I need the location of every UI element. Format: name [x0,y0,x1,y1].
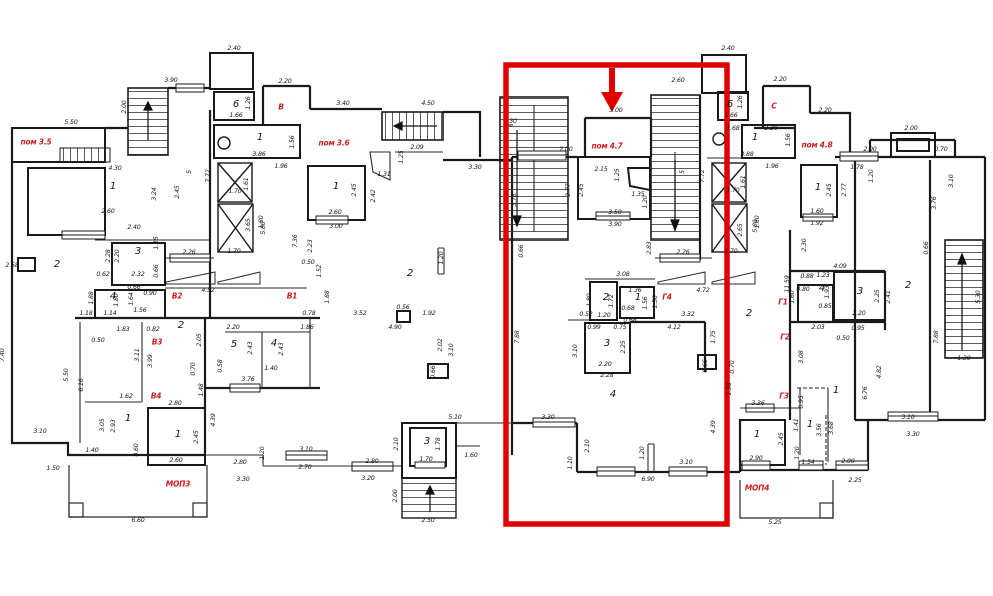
dimension-label: 2.28 [600,373,613,379]
section-label: пом 3.5 [21,138,52,146]
room-number-label: 1 [125,414,131,424]
dimension-label: 2.10 [585,439,591,452]
dimension-label: 0.70 [191,362,197,375]
dimension-label: 30 [509,119,517,125]
dimension-label: 0.50 [836,336,849,342]
dimension-label: 2.50 [421,518,434,524]
dimension-label: 3.76 [241,377,254,383]
dimension-label: 0.99 [587,325,600,331]
dimension-label: 2.45 [175,185,181,198]
dimension-label: 0.52 [579,312,592,318]
dimension-label: 1.15 [154,236,160,249]
floor-plan-page: 2.403.905.502.004.301.261.663.861.562.20… [0,0,993,596]
dimension-label: 0.85 [818,304,831,310]
dimension-label: 2.20 [773,77,786,83]
room-number-label: 1 [175,430,181,440]
dimension-label: 1.96 [765,164,778,170]
dimension-label: 1.26 [738,95,744,108]
dimension-label: 1.64 [129,292,135,305]
dimension-label: 2.77 [566,183,572,196]
dimension-label: 2.80 [233,460,246,466]
dimension-label: 5.10 [448,415,461,421]
dimension-label: 1.20 [795,446,801,459]
dimension-label: 0.50 [301,260,314,266]
dimension-label: 1.20 [869,169,875,182]
dimension-label: 1.56 [133,308,146,314]
room-number-label: 1 [754,430,760,440]
dimension-label: 1.70 [228,189,241,195]
room-number-label: 1 [833,386,839,396]
room-number-label: 2 [603,293,609,303]
dimension-label: 2.28 [106,249,112,262]
room-number-label: 2 [746,309,752,319]
dimension-label: 2.26 [676,250,689,256]
dimension-label: 3.10 [573,344,579,357]
dimension-label: 7.88 [515,330,521,343]
dimension-label: 1.56 [786,133,792,146]
dimension-label: 0.66 [154,264,160,277]
dimension-label: 1.96 [274,164,287,170]
dimension-label: 2.02 [438,338,444,351]
room-number-label: 6 [727,100,733,110]
dimension-label: 2.43 [279,342,285,355]
dimension-label: 1.88 [89,291,95,304]
room-number-label: 3 [424,437,430,447]
section-label: пом 4.8 [802,141,833,149]
dimension-label: 2.41 [886,290,892,303]
section-label: Г3 [779,392,789,400]
dimension-label: 5 [680,170,686,174]
dimension-label: 0.70 [730,360,736,373]
room-number-label: 5 [231,340,237,350]
dimension-label: 2.60 [671,78,684,84]
dimension-label: 2.00 [841,459,854,465]
dimension-label: 1.25 [615,168,621,181]
section-label: пом 3.6 [319,139,350,147]
dimension-label: 2.23 [308,239,314,252]
dimension-label: 3.50 [608,210,621,216]
section-label: МОП4 [745,484,770,492]
dimension-label: 0.60 [134,443,140,456]
dimension-label: 2.45 [579,183,585,196]
section-label: пом 4.7 [592,142,623,150]
dimension-label: 0.66 [703,359,709,372]
dimension-label: 2.60 [169,458,182,464]
dimension-label: 1.62 [119,394,132,400]
dimension-label: 1.80 [755,215,761,228]
dimension-label: 3.56 [817,423,823,436]
dimension-label: 3.30 [906,432,919,438]
dimension-label: 3.30 [468,165,481,171]
dimension-label: 3.90 [164,78,177,84]
dimension-label: 1.31 [377,172,390,178]
dimension-label: 2.05 [197,333,203,346]
dimension-label: 4.39 [711,420,717,433]
dimension-label: 1.72 [609,294,615,307]
dimension-label: 1.88 [325,290,331,303]
dimension-label: 2.20 [278,79,291,85]
dimension-label: 5.50 [64,368,70,381]
section-label: Г2 [780,333,790,341]
dimension-label: 3.20 [361,476,374,482]
dimension-label: 1.23 [816,273,829,279]
dimension-label: 1.20 [640,446,646,459]
dimension-label: 2.70 [298,465,311,471]
dimension-label: 0.75 [613,325,626,331]
dimension-label: 3.08 [616,272,629,278]
room-number-label: 2 [54,260,60,270]
room-number-label: 4 [610,390,616,400]
dimension-label: 3.10 [901,415,914,421]
section-label: Г1 [778,298,788,306]
dimension-label: 2.80 [168,401,181,407]
dimension-label: 3.76 [512,193,518,206]
dimension-label: 2.03 [811,325,824,331]
dimension-label: 1.68 [726,126,739,132]
dimension-label: 3.30 [541,415,554,421]
dimension-label: 2.20 [226,325,239,331]
dimension-label: 4.09 [833,264,846,270]
dimension-label: 1.58 [727,382,733,395]
dimension-label: 3.05 [100,418,106,431]
dimension-label: 2.40 [227,46,240,52]
dimension-label: 5 [187,170,193,174]
dimension-label: 2.20 [852,311,865,317]
dimension-label: 1.56 [653,295,659,308]
dimension-label: 2.25 [875,289,881,302]
dimension-label: 2.32 [131,272,144,278]
dimension-label: 0.56 [396,305,409,311]
dimension-label: 2.43 [248,341,254,354]
dimension-label: 2.15 [594,167,607,173]
dimension-label: 1.92 [422,311,435,317]
dimension-label: 0.58 [218,359,224,372]
room-number-label: 4 [110,292,116,302]
dimension-label: 2.58 [5,263,18,269]
dimension-label: 2.10 [394,437,400,450]
room-number-label: 1 [333,182,339,192]
room-number-label: 3 [135,247,141,257]
dimension-label: 0.66 [924,241,930,254]
dimension-label: 4.90 [388,325,401,331]
dimension-label: 1.56 [290,135,296,148]
dimension-label: 5.30 [976,290,982,303]
dimension-label: 2.00 [393,489,399,502]
dimension-label: 0.82 [146,327,159,333]
dimension-label: 3.65 [246,218,252,231]
dimension-label: 2.00 [559,147,572,153]
dimension-label: 1.60 [464,453,477,459]
dimension-label: 1.61 [741,175,747,188]
dimension-label: 2.40 [721,46,734,52]
dimension-label: 6.76 [863,386,869,399]
dimension-label: 4.72 [696,288,709,294]
dimension-label: 1.18 [79,311,92,317]
dimension-label: 1.70 [724,249,737,255]
room-number-label: 1 [815,183,821,193]
dimension-label: 1.86 [300,325,313,331]
dimension-label: 3.76 [932,196,938,209]
dimension-label: 3.99 [148,354,154,367]
dimension-label: 1.92 [810,221,823,227]
dimension-label: 0.88 [800,274,813,280]
dimension-label: 1.60 [810,209,823,215]
dimension-label: 2.00 [863,147,876,153]
room-number-label: 3 [857,287,863,297]
dimension-label: 6.90 [641,477,654,483]
dimension-label: 7.40 [0,348,6,361]
room-number-label: 1 [752,133,758,143]
dimension-label: 5.50 [64,120,77,126]
dimension-label: 2.25 [621,340,627,353]
section-label: С [771,102,776,110]
dimension-label: 1.14 [103,311,116,317]
dimension-label: 2.00 [904,126,917,132]
dimension-label: 3.00 [329,224,342,230]
dimension-label: 2.83 [647,241,653,254]
dimension-labels-layer: 2.403.905.502.004.301.261.663.861.562.20… [0,0,993,596]
dimension-label: 1.56 [643,296,649,309]
dimension-label: 4.12 [667,325,680,331]
dimension-label: 2.20 [764,126,777,132]
dimension-label: 3.11 [135,348,141,361]
dimension-label: 3.40 [336,101,349,107]
room-number-label: 2 [905,281,911,291]
dimension-label: 2.26 [182,250,195,256]
dimension-label: 1.20 [260,446,266,459]
dimension-label: 3.10 [299,447,312,453]
dimension-label: 5.25 [768,520,781,526]
dimension-label: 6.60 [131,518,144,524]
dimension-label: 5.80 [261,221,267,234]
dimension-label: 2.93 [111,419,117,432]
dimension-label: 1.52 [317,264,323,277]
dimension-label: 1.26 [246,96,252,109]
section-label: МОП3 [166,480,191,488]
dimension-label: 1.50 [46,466,59,472]
dimension-label: 3.10 [449,343,455,356]
dimension-label: 1.61 [244,177,250,190]
dimension-label: 2.45 [194,430,200,443]
dimension-label: 4.39 [211,413,217,426]
dimension-label: 1.54 [801,460,814,466]
section-label: В2 [172,292,183,300]
dimension-label: 4.52 [201,288,214,294]
dimension-label: 0.95 [799,395,805,408]
dimension-label: 4.30 [108,166,121,172]
dimension-label: 0.66 [127,285,140,291]
dimension-label: 3.00 [609,108,622,114]
dimension-label: 3.90 [608,222,621,228]
dimension-label: 1.66 [229,113,242,119]
dimension-label: 7.72 [206,169,212,182]
dimension-label: 2.20 [115,249,121,262]
room-number-label: 1 [257,133,263,143]
dimension-label: 1.10 [568,456,574,469]
dimension-label: 1.78 [436,437,442,450]
section-label: В1 [287,292,298,300]
dimension-label: 0.50 [91,338,104,344]
dimension-label: 7.36 [293,234,299,247]
dimension-label: 2.20 [598,362,611,368]
section-label: Г4 [662,293,672,301]
dimension-label: 0.95 [851,326,864,332]
dimension-label: 3.36 [751,401,764,407]
dimension-label: 0.90 [143,291,156,297]
dimension-label: 1.70 [227,249,240,255]
dimension-label: 7.88 [934,330,940,343]
room-number-label: 1 [110,182,116,192]
room-number-label: 6 [233,100,239,110]
dimension-label: 1.20 [597,313,610,319]
room-number-label: 3 [604,339,610,349]
dimension-label: 1.75 [711,330,717,343]
dimension-label: 1.70 [419,457,432,463]
dimension-label: 2.30 [802,238,808,251]
dimension-label: 1.40 [264,366,277,372]
dimension-label: 3.10 [949,174,955,187]
dimension-label: 0.66 [519,244,525,257]
dimension-label: 2.45 [352,183,358,196]
dimension-label: 3.30 [236,477,249,483]
dimension-label: 2.65 [738,223,744,236]
dimension-label: 0.78 [302,311,315,317]
dimension-label: 2.45 [827,183,833,196]
dimension-label: 2.09 [410,145,423,151]
dimension-label: 3.68 [829,421,835,434]
dimension-label: 1.93 [825,285,831,298]
dimension-label: 2.25 [848,478,861,484]
room-number-label: 4 [271,339,277,349]
room-number-label: 4 [819,284,825,294]
section-label: В4 [151,392,162,400]
dimension-label: 4.50 [421,101,434,107]
dimension-label: 6.16 [79,378,85,391]
dimension-label: 2.40 [127,225,140,231]
dimension-label: 2.20 [818,108,831,114]
dimension-label: 0.68 [621,306,634,312]
dimension-label: 3.52 [353,311,366,317]
dimension-label: 3.10 [679,460,692,466]
dimension-label: 2.80 [365,459,378,465]
section-label: В3 [152,338,163,346]
dimension-label: 1.41 [794,418,800,431]
dimension-label: 0.70 [934,147,947,153]
dimension-label: 1.40 [85,448,98,454]
dimension-label: 1.25 [399,150,405,163]
dimension-label: 0.62 [96,272,109,278]
dimension-label: 1.30 [957,356,970,362]
dimension-label: 7.72 [700,169,706,182]
dimension-label: 1.66 [724,113,737,119]
dimension-label: 2.00 [122,100,128,113]
dimension-label: 1.78 [850,165,863,171]
dimension-label: 1.48 [199,383,205,396]
dimension-label: 2.60 [101,209,114,215]
dimension-label: 1.20 [643,195,649,208]
dimension-label: 0.66 [431,365,437,378]
dimension-label: 2.77 [842,183,848,196]
dimension-label: 0.80 [796,287,809,293]
dimension-label: 2.90 [749,456,762,462]
dimension-label: 3.32 [681,312,694,318]
dimension-label: 3.86 [252,152,265,158]
dimension-label: 1.20 [439,251,445,264]
dimension-label: 3.24 [152,187,158,200]
dimension-label: 2.60 [328,210,341,216]
room-number-label: 1 [807,420,813,430]
dimension-label: 2.42 [371,189,377,202]
room-number-label: 1 [635,293,641,303]
dimension-label: 3.88 [740,152,753,158]
dimension-label: 1.70 [726,188,739,194]
dimension-label: 3.08 [799,350,805,363]
dimension-label: 1.80 [587,293,593,306]
dimension-label: 1.83 [116,327,129,333]
dimension-label: 2.45 [779,432,785,445]
room-number-label: 2 [178,321,184,331]
room-number-label: 2 [407,269,413,279]
dimension-label: 1.60 [790,290,796,303]
dimension-label: 4.82 [877,365,883,378]
section-label: В [278,103,284,111]
dimension-label: 3.10 [33,429,46,435]
